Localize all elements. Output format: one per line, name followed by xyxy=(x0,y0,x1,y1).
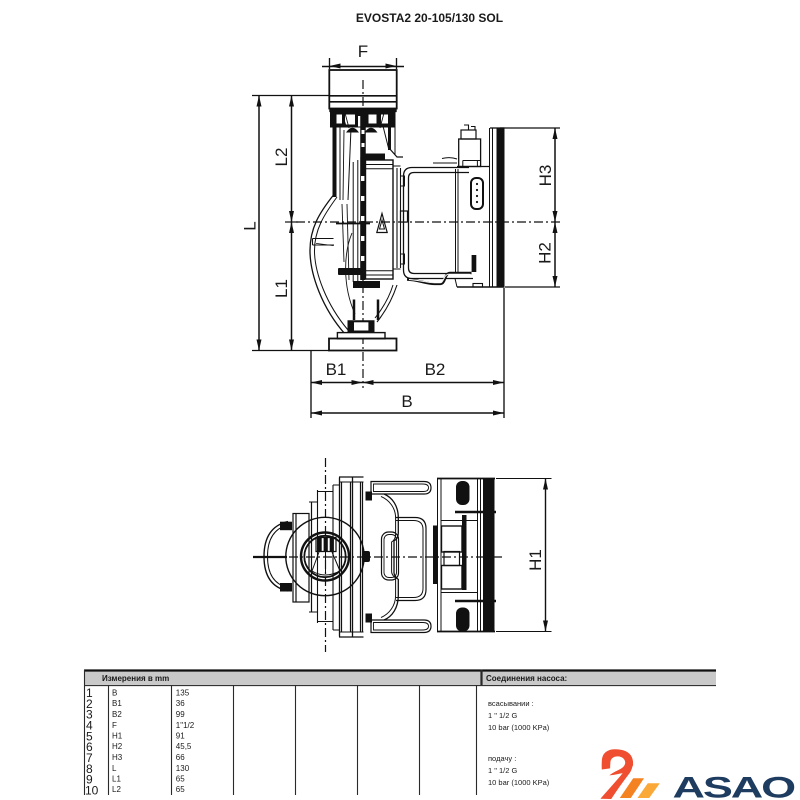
svg-text:F: F xyxy=(358,42,368,61)
svg-text:91: 91 xyxy=(176,732,185,741)
svg-text:L2: L2 xyxy=(272,148,291,167)
svg-text:EVOSTA2 20-105/130 SOL: EVOSTA2 20-105/130 SOL xyxy=(356,11,503,25)
svg-text:65: 65 xyxy=(176,785,185,794)
svg-text:H2: H2 xyxy=(112,742,123,751)
svg-text:L: L xyxy=(241,221,260,230)
svg-text:L: L xyxy=(112,764,117,773)
svg-text:10 bar (1000 KPa): 10 bar (1000 KPa) xyxy=(488,723,550,732)
svg-text:99: 99 xyxy=(176,710,185,719)
svg-text:B: B xyxy=(401,392,412,411)
svg-text:135: 135 xyxy=(176,689,190,698)
svg-text:45,5: 45,5 xyxy=(176,742,192,751)
svg-text:10 bar (1000 KPa): 10 bar (1000 KPa) xyxy=(488,778,550,787)
svg-text:H3: H3 xyxy=(536,165,555,187)
svg-text:L1: L1 xyxy=(272,279,291,298)
svg-text:B2: B2 xyxy=(112,710,122,719)
svg-text:ASAO: ASAO xyxy=(672,771,795,800)
svg-text:H3: H3 xyxy=(112,753,123,762)
svg-text:Измерения в mm: Измерения в mm xyxy=(102,674,169,683)
svg-text:Соединения насоса:: Соединения насоса: xyxy=(486,674,567,683)
svg-text:66: 66 xyxy=(176,753,185,762)
svg-text:1 " 1/2 G: 1 " 1/2 G xyxy=(488,711,518,720)
svg-text:подачу :: подачу : xyxy=(488,754,516,763)
svg-text:L1: L1 xyxy=(112,775,121,784)
svg-text:F: F xyxy=(112,721,117,730)
svg-text:H1: H1 xyxy=(112,732,123,741)
svg-text:B: B xyxy=(112,689,117,698)
svg-text:B1: B1 xyxy=(326,360,347,379)
svg-text:10: 10 xyxy=(85,784,99,798)
svg-text:1"1/2: 1"1/2 xyxy=(176,721,195,730)
svg-text:L2: L2 xyxy=(112,785,121,794)
svg-text:H2: H2 xyxy=(536,242,555,264)
svg-text:36: 36 xyxy=(176,699,185,708)
svg-text:1 " 1/2 G: 1 " 1/2 G xyxy=(488,766,518,775)
svg-text:65: 65 xyxy=(176,775,185,784)
svg-text:130: 130 xyxy=(176,764,190,773)
svg-text:B2: B2 xyxy=(425,360,446,379)
svg-text:всасывании :: всасывании : xyxy=(488,699,534,708)
svg-text:B1: B1 xyxy=(112,699,122,708)
svg-text:H1: H1 xyxy=(526,549,545,571)
